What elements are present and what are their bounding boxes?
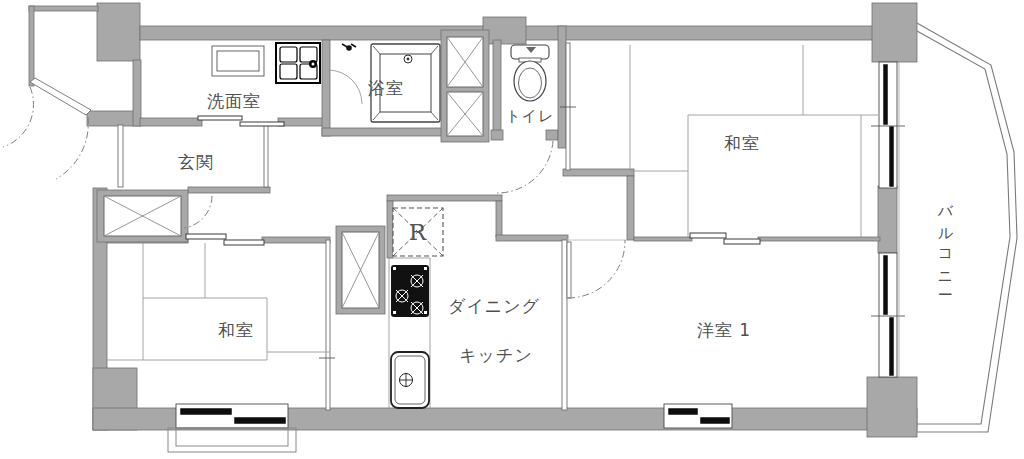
sliding-door-room1 [690, 233, 760, 244]
room-label-dining: ダイニング [448, 295, 540, 318]
room-label-japanese-room-1: 和室 [724, 132, 760, 155]
window-east-western-room [871, 253, 905, 377]
entrance-door-leaf [30, 78, 91, 115]
pipe-shaft [441, 30, 489, 142]
entrance-door-arc [3, 87, 34, 147]
room-label-balcony: バルコニー [936, 194, 955, 292]
shower-faucet-icon [342, 44, 356, 51]
room-label-japanese-room-2: 和室 [218, 319, 254, 342]
sliding-door-room2 [186, 234, 264, 245]
floor-plan: 洗面室 浴室 トイレ 玄関 和室 和室 ダイニング キッチン 洋室 1 バルコニ… [0, 0, 1024, 459]
entrance-closet [97, 190, 188, 242]
entrance-door-arc-2 [56, 117, 88, 179]
toilet-door-arc [497, 141, 553, 193]
sliding-door-washroom [198, 116, 284, 126]
western-room-door-arc [568, 240, 625, 298]
sink-icon [391, 352, 429, 408]
washing-machine-pan-icon [276, 43, 320, 83]
western-room-door-leaf [567, 242, 571, 298]
room-label-entrance: 玄関 [178, 151, 214, 174]
floor-plan-drawing [0, 0, 1024, 459]
window-east-room1 [871, 62, 905, 188]
stove-icon [391, 265, 429, 317]
kitchen-closet [336, 226, 385, 314]
window-south-room2 [168, 404, 296, 452]
balcony-railing [899, 23, 1017, 432]
room-label-toilet: トイレ [505, 107, 554, 126]
tatami-lines-room2 [107, 243, 330, 360]
room-label-bathroom: 浴室 [368, 77, 404, 100]
room-label-kitchen: キッチン [459, 344, 533, 367]
bathroom-door-arc [328, 70, 362, 104]
interior-walls [107, 26, 880, 258]
toilet-icon [511, 45, 549, 101]
vanity-counter-icon [212, 46, 264, 76]
refrigerator-label: R [409, 219, 427, 245]
window-south-western-room [664, 404, 732, 428]
room-label-washroom: 洗面室 [207, 90, 261, 113]
room-label-western-room: 洋室 1 [697, 319, 751, 342]
